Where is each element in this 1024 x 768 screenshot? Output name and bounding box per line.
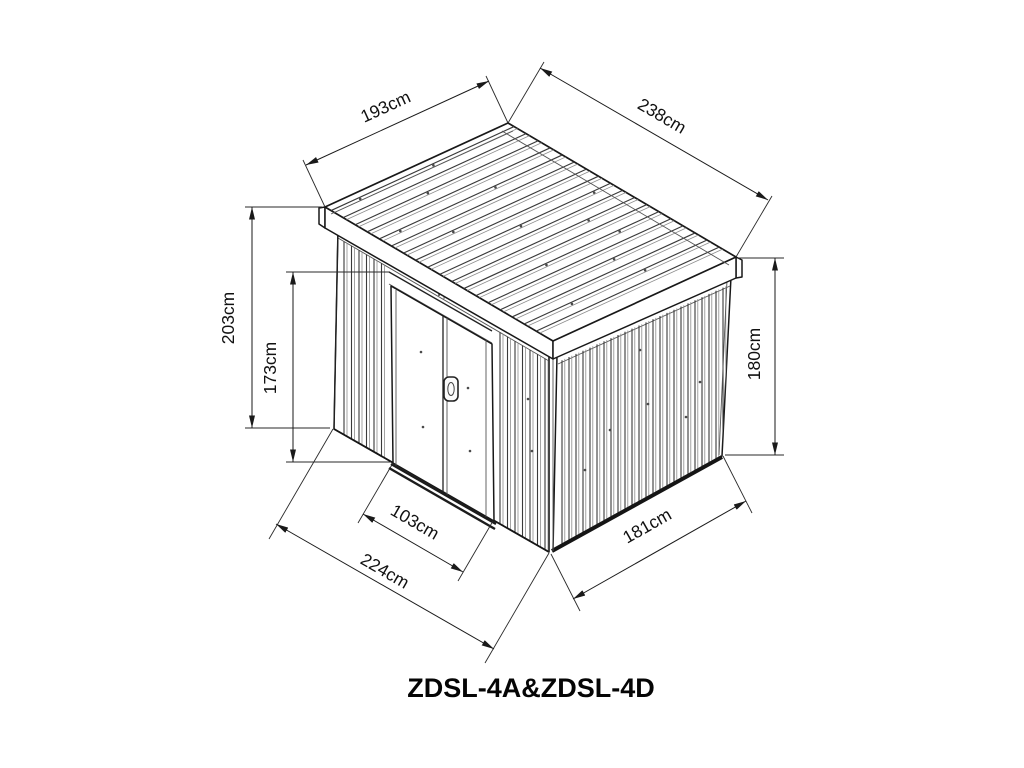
label-door-width: 103cm (387, 500, 442, 544)
roof-screw (618, 230, 621, 233)
shed-drawing (319, 123, 742, 552)
roof-screw (644, 269, 647, 272)
roof-screw (571, 303, 574, 306)
roof-screw (545, 264, 548, 267)
roof-screw (587, 219, 590, 222)
roof-screw (427, 192, 430, 195)
roof-screw (494, 186, 497, 189)
roof-screw (520, 225, 523, 228)
roof-screw (432, 164, 435, 167)
roof-screw (452, 231, 455, 234)
shed-dimension-diagram: 193cm 238cm 203cm 173cm 180cm (0, 0, 1024, 768)
drawing-page: 193cm 238cm 203cm 173cm 180cm (0, 0, 1024, 768)
dimension-rear-wall-height: 180cm (725, 258, 784, 455)
label-door-height: 173cm (260, 342, 280, 395)
label-front-height: 203cm (218, 292, 238, 345)
roof-screw (613, 258, 616, 261)
roof-fascia-right-cap (736, 257, 742, 278)
corner-post (549, 354, 553, 552)
door-handle (444, 377, 458, 401)
roof-screw (593, 191, 596, 194)
roof-fascia-left-cap (319, 207, 325, 228)
roof-screw (399, 230, 402, 233)
label-rear-wall-height: 180cm (744, 328, 764, 381)
label-roof-front-edge: 193cm (357, 87, 413, 127)
model-title: ZDSL-4A&ZDSL-4D (407, 673, 655, 703)
label-roof-side-edge: 238cm (634, 94, 689, 138)
